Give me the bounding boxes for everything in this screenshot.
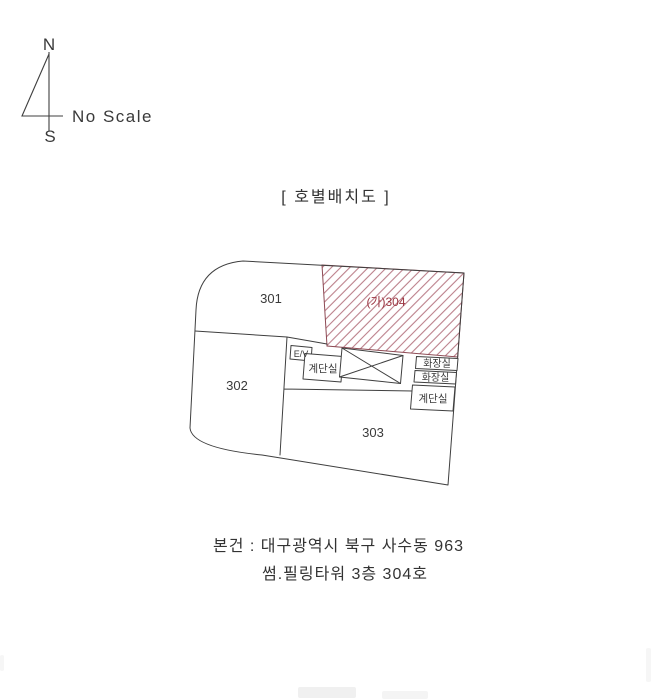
toilet-upper-label: 화장실 bbox=[423, 358, 451, 370]
scanned-plan-page: N S No Scale 301 302 303 (가)304 E/V bbox=[0, 0, 651, 700]
plan-drawing: N S No Scale 301 302 303 (가)304 E/V bbox=[0, 0, 651, 700]
scan-artifact bbox=[0, 655, 4, 671]
page-title: [ 호별배치도 ] bbox=[281, 183, 390, 207]
stair-left-label: 계단실 bbox=[309, 363, 338, 375]
elevator-label: E/V bbox=[294, 349, 309, 359]
unit-302-label: 302 bbox=[226, 378, 248, 393]
toilet-lower-label: 화장실 bbox=[422, 372, 450, 384]
compass-south-label: S bbox=[44, 127, 55, 146]
scan-artifact bbox=[298, 687, 356, 698]
unit-304-hatched-area bbox=[322, 265, 464, 357]
compass-labels: N S No Scale bbox=[43, 35, 153, 146]
subject-address-line2: 썸.필링타워 3층 304호 bbox=[262, 560, 428, 584]
compass-north-label: N bbox=[43, 35, 55, 54]
stair-right-label: 계단실 bbox=[419, 393, 448, 405]
subject-address-line1: 본건 : 대구광역시 북구 사수동 963 bbox=[213, 532, 464, 556]
scan-artifact bbox=[382, 691, 428, 699]
scan-artifact bbox=[646, 648, 651, 682]
compass bbox=[22, 52, 63, 131]
unit-304-subject-label: (가)304 bbox=[366, 295, 405, 309]
scale-note: No Scale bbox=[72, 107, 153, 126]
unit-301-label: 301 bbox=[260, 291, 282, 306]
unit-303-label: 303 bbox=[362, 425, 384, 440]
compass-needle bbox=[22, 52, 63, 131]
